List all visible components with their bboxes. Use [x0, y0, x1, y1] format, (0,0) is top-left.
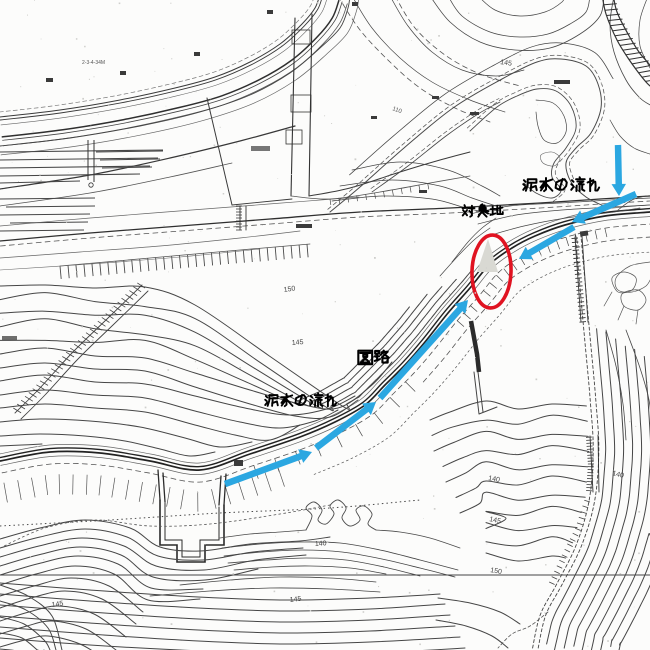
- svg-text:145: 145: [292, 339, 304, 347]
- svg-text:2-3-4-34M: 2-3-4-34M: [82, 60, 105, 66]
- svg-text:140: 140: [315, 540, 327, 548]
